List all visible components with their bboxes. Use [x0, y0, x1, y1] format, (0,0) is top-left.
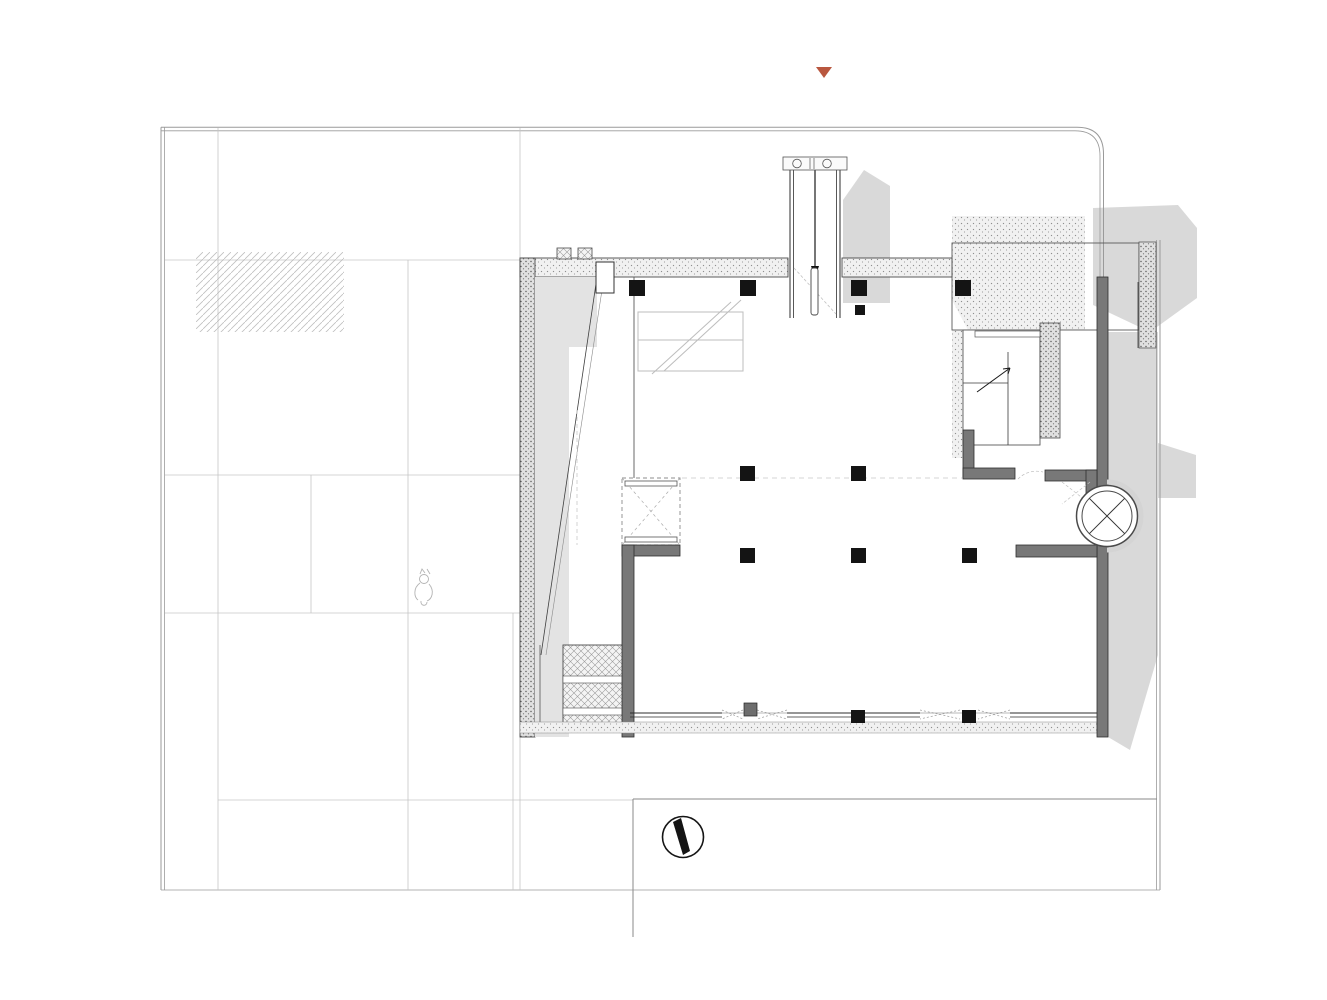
- interior-stair-above: [638, 300, 743, 374]
- jinger-road-label: [1163, 589, 1180, 789]
- exterior-side-stairs: [1138, 242, 1156, 348]
- jingyi-road-label: [138, 291, 155, 491]
- weisan-road-label: [377, 105, 395, 122]
- entrance-stairs: [783, 157, 847, 318]
- fire-stairs-label: [1079, 279, 1094, 479]
- building-site-plan: [0, 0, 1327, 1000]
- main-entrance-label: [744, 63, 904, 78]
- site-plan-drawing: [0, 0, 1327, 1000]
- entrance-arrow-icon: [816, 67, 832, 78]
- cat-sketch: [415, 569, 432, 605]
- sinking-atrium-opening: [622, 478, 680, 545]
- legend-box-and-compass: [633, 799, 1157, 937]
- structural-columns: [629, 280, 977, 723]
